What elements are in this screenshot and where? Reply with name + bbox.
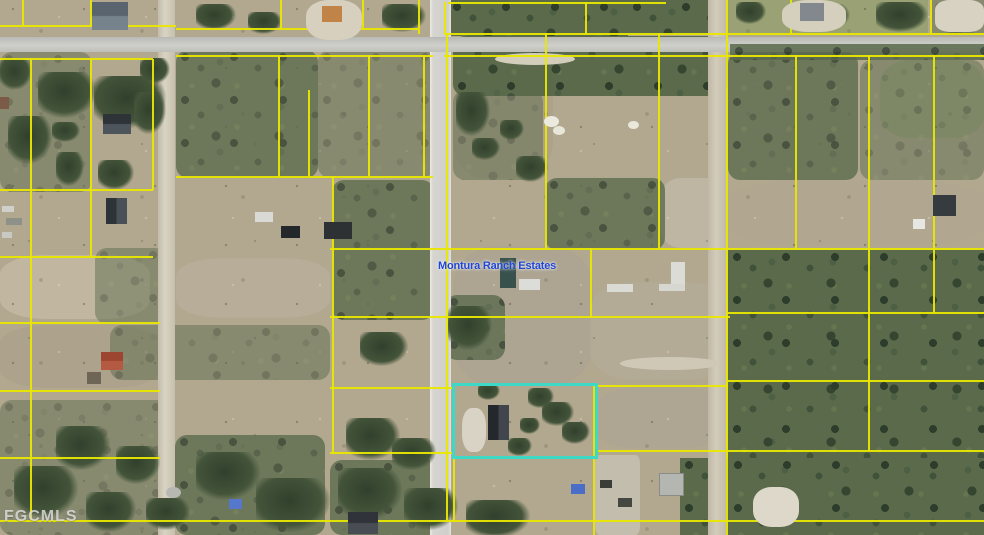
tree-overhang bbox=[730, 44, 984, 60]
shed bbox=[324, 222, 352, 239]
parcel-line bbox=[728, 380, 984, 382]
house-bottom-left bbox=[348, 512, 378, 534]
trailer bbox=[2, 232, 12, 238]
tree-clump bbox=[466, 500, 530, 535]
tree-clump bbox=[736, 2, 766, 24]
building bbox=[0, 97, 9, 109]
parcel-line bbox=[868, 55, 870, 451]
parcel-line bbox=[152, 59, 154, 190]
parcel-line bbox=[0, 457, 160, 459]
building bbox=[92, 2, 128, 30]
parcel-line bbox=[368, 55, 370, 177]
parcel-line bbox=[590, 248, 592, 318]
parcel-line bbox=[444, 55, 984, 57]
parcel-line bbox=[330, 452, 453, 454]
shed bbox=[913, 219, 925, 229]
forest-area bbox=[318, 50, 434, 178]
parcel-line bbox=[0, 390, 160, 392]
parcel-line bbox=[176, 28, 418, 30]
tree-clump bbox=[196, 452, 260, 500]
forest-area bbox=[176, 50, 318, 178]
tree-clump bbox=[196, 4, 236, 30]
parcel-line bbox=[585, 2, 587, 34]
parcel-line bbox=[446, 33, 448, 520]
trailer bbox=[2, 206, 14, 212]
barn bbox=[659, 473, 684, 496]
parcel-line bbox=[0, 520, 984, 522]
parcel-line bbox=[330, 248, 984, 250]
tree-clump bbox=[56, 152, 84, 186]
parcel-line bbox=[176, 176, 433, 178]
sand-clearing bbox=[935, 0, 984, 32]
trailer bbox=[255, 212, 273, 222]
tree-clump bbox=[248, 12, 282, 34]
tree-clump bbox=[56, 426, 110, 470]
tree-clump bbox=[0, 58, 32, 90]
building bbox=[800, 3, 824, 21]
parcel-line bbox=[595, 450, 984, 452]
dirt-road-right bbox=[708, 0, 726, 535]
driveway bbox=[595, 455, 640, 535]
dirt-path bbox=[620, 357, 720, 370]
aerial-map-image: Montura Ranch Estates FGCMLS bbox=[0, 0, 984, 535]
forest-area bbox=[448, 0, 628, 36]
forest-area bbox=[95, 248, 167, 324]
parcel-line bbox=[278, 55, 280, 177]
pond bbox=[628, 121, 639, 129]
parcel-line bbox=[90, 59, 92, 257]
trailer bbox=[607, 284, 633, 292]
parcel-line bbox=[0, 25, 176, 27]
tree-clump bbox=[472, 138, 500, 160]
tree-clump bbox=[116, 446, 160, 484]
parcel-line bbox=[176, 55, 433, 57]
forest-area bbox=[110, 325, 330, 380]
parcel-line bbox=[0, 58, 153, 60]
vehicle bbox=[618, 498, 632, 507]
sand-clearing bbox=[753, 487, 799, 527]
parcel-line bbox=[726, 0, 728, 535]
parcel-line bbox=[0, 189, 153, 191]
parcel-line bbox=[30, 59, 32, 520]
shed bbox=[281, 226, 300, 238]
tree-clump bbox=[360, 332, 408, 366]
tree-clump bbox=[500, 120, 524, 140]
forest-area bbox=[728, 250, 984, 462]
subdivision-label: Montura Ranch Estates bbox=[438, 260, 556, 272]
tree-clump bbox=[404, 488, 458, 530]
pond bbox=[166, 487, 181, 498]
blue-tarp bbox=[229, 499, 242, 509]
parcel-line bbox=[308, 90, 310, 177]
forest-area bbox=[728, 52, 858, 180]
parcel-line bbox=[444, 33, 984, 35]
parcel-line bbox=[795, 55, 797, 249]
building bbox=[322, 6, 342, 22]
barn bbox=[103, 114, 131, 134]
tree-clump bbox=[140, 58, 170, 84]
parcel-line bbox=[362, 0, 364, 29]
parcel-line bbox=[330, 316, 730, 318]
pond bbox=[553, 126, 565, 135]
blue-tarp bbox=[571, 484, 585, 494]
tree-clump bbox=[456, 92, 490, 136]
driveway bbox=[462, 408, 486, 452]
parcel-line bbox=[933, 55, 935, 313]
tree-clump bbox=[392, 438, 436, 470]
trailer bbox=[519, 279, 540, 290]
parcel-line bbox=[330, 387, 453, 389]
parcel-line bbox=[930, 0, 932, 34]
vehicle bbox=[600, 480, 612, 488]
subject-house bbox=[488, 405, 509, 440]
parcel-line bbox=[545, 33, 547, 249]
parcel-line bbox=[448, 2, 666, 4]
house-red-roof bbox=[101, 352, 123, 370]
tree-clump bbox=[448, 306, 492, 350]
parcel-line bbox=[418, 0, 420, 34]
parcel-line bbox=[280, 0, 282, 29]
parcel-line bbox=[423, 55, 425, 177]
tree-clump bbox=[256, 478, 330, 532]
tree-clump bbox=[38, 72, 96, 118]
forest-area bbox=[332, 180, 434, 320]
building bbox=[933, 195, 956, 216]
tree-clump bbox=[146, 498, 190, 530]
mls-watermark: FGCMLS bbox=[4, 508, 78, 526]
parcel-line bbox=[595, 385, 728, 387]
parcel-line bbox=[0, 322, 160, 324]
tree-clump bbox=[98, 160, 134, 190]
parcel-line bbox=[22, 0, 24, 26]
tree-clump bbox=[134, 92, 166, 134]
parcel-line bbox=[453, 455, 455, 521]
parcel-line bbox=[332, 176, 334, 454]
tree-clump bbox=[876, 2, 928, 32]
parcel-line bbox=[444, 2, 446, 34]
tree-clump bbox=[516, 156, 548, 182]
tree-clump bbox=[52, 122, 80, 142]
parcel-line bbox=[658, 33, 660, 249]
forest-area bbox=[860, 60, 984, 180]
barn bbox=[106, 198, 127, 224]
parcel-line bbox=[0, 256, 153, 258]
forest-area bbox=[628, 0, 708, 35]
parcel-line bbox=[728, 312, 984, 314]
trailer bbox=[659, 284, 685, 291]
forest-area bbox=[545, 178, 665, 250]
tree-clump bbox=[86, 492, 136, 532]
trailer bbox=[6, 218, 22, 225]
shed bbox=[87, 372, 101, 384]
